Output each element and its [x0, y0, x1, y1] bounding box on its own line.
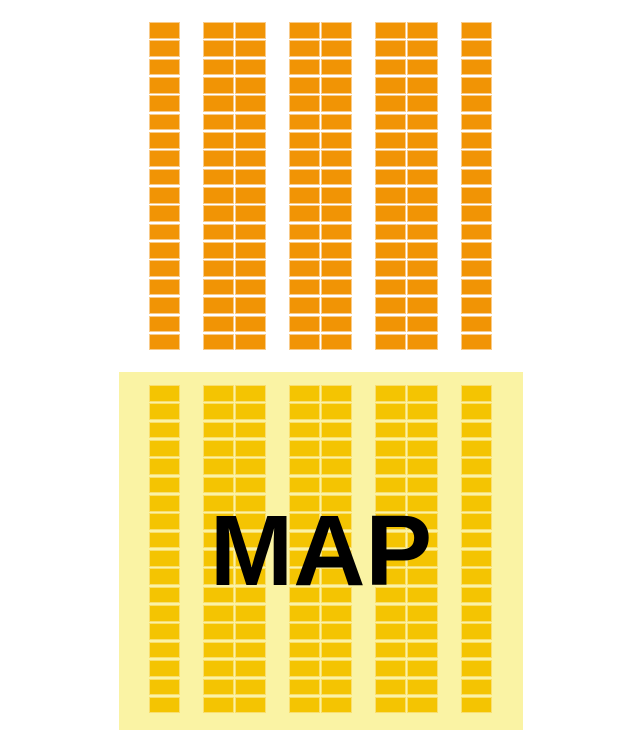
seat-cell — [321, 114, 352, 131]
seat-cell — [407, 187, 438, 204]
seat-cell — [235, 316, 266, 333]
seat-cell — [289, 260, 320, 277]
seat-cell — [289, 205, 320, 222]
seat-cell — [461, 205, 492, 222]
seat-cell — [407, 279, 438, 296]
seat-cell — [149, 297, 180, 314]
seat-cell — [375, 22, 406, 39]
seat-map-thumbnail: MAP — [0, 0, 640, 749]
seat-cell — [235, 260, 266, 277]
seat-cell — [149, 316, 180, 333]
seat-cell — [289, 150, 320, 167]
seat-cell — [375, 260, 406, 277]
map-label: MAP — [119, 372, 523, 730]
seat-cell — [203, 205, 234, 222]
seat-cell — [407, 59, 438, 76]
seat-cell — [289, 59, 320, 76]
seat-cell — [321, 205, 352, 222]
seat-cell — [375, 279, 406, 296]
seat-cell — [461, 334, 492, 351]
seat-cell — [375, 114, 406, 131]
seat-cell — [375, 224, 406, 241]
seat-cell — [375, 59, 406, 76]
seat-cell — [235, 169, 266, 186]
seat-cell — [235, 205, 266, 222]
seat-cell — [203, 77, 234, 94]
seat-cell — [461, 316, 492, 333]
seat-cell — [149, 40, 180, 57]
seat-cell — [235, 59, 266, 76]
seat-cell — [375, 316, 406, 333]
seat-cell — [321, 40, 352, 57]
seat-cell — [235, 22, 266, 39]
seat-cell — [461, 132, 492, 149]
seat-cell — [203, 59, 234, 76]
seat-cell — [149, 95, 180, 112]
seat-cell — [321, 169, 352, 186]
seat-cell — [203, 95, 234, 112]
seat-cell — [203, 150, 234, 167]
seat-cell — [235, 150, 266, 167]
seat-cell — [407, 242, 438, 259]
seat-cell — [289, 224, 320, 241]
seat-cell — [289, 132, 320, 149]
seat-cell — [375, 77, 406, 94]
seat-cell — [461, 77, 492, 94]
seat-cell — [461, 187, 492, 204]
seat-cell — [289, 242, 320, 259]
seat-cell — [407, 224, 438, 241]
seat-cell — [321, 150, 352, 167]
seat-cell — [289, 22, 320, 39]
seat-cell — [407, 95, 438, 112]
seat-cell — [149, 169, 180, 186]
seat-cell — [149, 242, 180, 259]
seat-cell — [235, 297, 266, 314]
seat-cell — [289, 169, 320, 186]
seat-cell — [289, 334, 320, 351]
seat-cell — [321, 297, 352, 314]
seat-cell — [203, 22, 234, 39]
seat-cell — [235, 242, 266, 259]
seat-cell — [235, 187, 266, 204]
seat-cell — [375, 95, 406, 112]
seat-cell — [407, 22, 438, 39]
seat-cell — [203, 260, 234, 277]
seat-cell — [235, 77, 266, 94]
seat-cell — [461, 297, 492, 314]
seat-cell — [203, 132, 234, 149]
seat-cell — [375, 169, 406, 186]
seat-cell — [149, 150, 180, 167]
seat-column-group — [375, 22, 438, 350]
seat-cell — [149, 224, 180, 241]
seat-cell — [375, 40, 406, 57]
seat-cell — [375, 187, 406, 204]
seat-cell — [407, 132, 438, 149]
seat-cell — [461, 22, 492, 39]
seat-cell — [461, 59, 492, 76]
seat-cell — [407, 316, 438, 333]
seat-cell — [149, 132, 180, 149]
map-panel[interactable]: MAP — [119, 372, 523, 730]
seat-cell — [407, 334, 438, 351]
seat-cell — [375, 297, 406, 314]
seat-cell — [289, 316, 320, 333]
seat-cell — [321, 334, 352, 351]
seat-cell — [407, 114, 438, 131]
seat-cell — [461, 169, 492, 186]
seat-cell — [289, 95, 320, 112]
seat-cell — [289, 187, 320, 204]
seat-cell — [203, 279, 234, 296]
seat-cell — [321, 95, 352, 112]
seat-cell — [149, 279, 180, 296]
seat-cell — [321, 242, 352, 259]
seat-cell — [149, 114, 180, 131]
seat-cell — [407, 205, 438, 222]
seat-column-group — [289, 22, 352, 350]
seat-cell — [235, 114, 266, 131]
seat-cell — [321, 279, 352, 296]
seat-cell — [149, 260, 180, 277]
seat-cell — [235, 132, 266, 149]
seat-cell — [407, 297, 438, 314]
seat-column-group — [461, 22, 492, 350]
seat-cell — [149, 334, 180, 351]
seat-cell — [203, 114, 234, 131]
seat-cell — [289, 279, 320, 296]
seat-cell — [461, 40, 492, 57]
seat-cell — [407, 260, 438, 277]
seat-cell — [235, 334, 266, 351]
seat-column-group — [203, 22, 266, 350]
seat-cell — [235, 279, 266, 296]
seat-cell — [235, 95, 266, 112]
seat-cell — [375, 150, 406, 167]
seat-cell — [321, 22, 352, 39]
seat-cell — [461, 150, 492, 167]
seat-cell — [235, 224, 266, 241]
seat-cell — [461, 279, 492, 296]
seat-cell — [321, 77, 352, 94]
seat-cell — [407, 150, 438, 167]
seat-cell — [235, 40, 266, 57]
seat-grid-upper — [149, 22, 492, 350]
seat-cell — [375, 334, 406, 351]
seat-cell — [203, 334, 234, 351]
seat-cell — [149, 77, 180, 94]
seat-cell — [461, 95, 492, 112]
seat-cell — [461, 114, 492, 131]
seat-cell — [149, 59, 180, 76]
seat-cell — [203, 316, 234, 333]
seat-cell — [203, 40, 234, 57]
seat-cell — [407, 169, 438, 186]
seat-cell — [149, 187, 180, 204]
seat-cell — [289, 114, 320, 131]
seat-cell — [203, 224, 234, 241]
seat-cell — [321, 59, 352, 76]
seat-cell — [321, 132, 352, 149]
seat-cell — [321, 224, 352, 241]
seat-cell — [203, 187, 234, 204]
seat-cell — [407, 40, 438, 57]
seat-column-group — [149, 22, 180, 350]
seat-cell — [461, 260, 492, 277]
seat-cell — [375, 242, 406, 259]
seat-cell — [375, 205, 406, 222]
seat-cell — [289, 77, 320, 94]
seat-cell — [149, 22, 180, 39]
seat-cell — [461, 224, 492, 241]
seat-cell — [289, 297, 320, 314]
seat-cell — [321, 260, 352, 277]
seat-cell — [149, 205, 180, 222]
seat-cell — [203, 297, 234, 314]
seat-cell — [407, 77, 438, 94]
seat-cell — [203, 242, 234, 259]
seat-cell — [289, 40, 320, 57]
seat-cell — [461, 242, 492, 259]
seat-cell — [375, 132, 406, 149]
seat-cell — [321, 316, 352, 333]
seat-cell — [203, 169, 234, 186]
seat-cell — [321, 187, 352, 204]
